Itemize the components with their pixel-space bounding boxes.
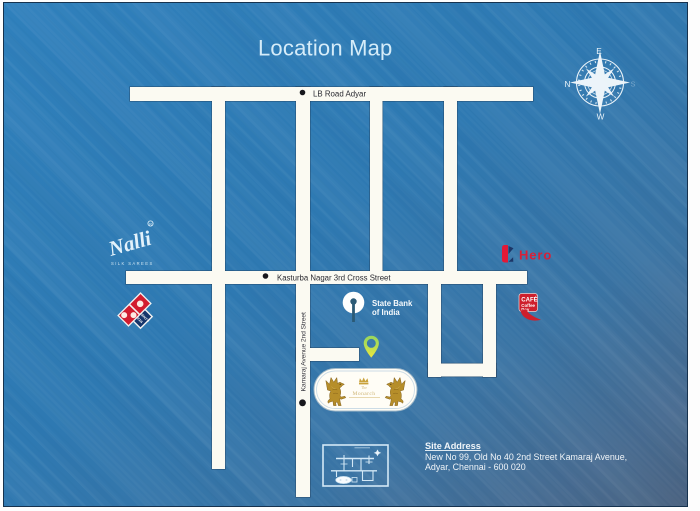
svg-text:State Bank: State Bank [372,299,413,308]
svg-text:Adyar, Chennai - 600 020: Adyar, Chennai - 600 020 [425,462,526,472]
svg-text:Hero: Hero [519,248,552,263]
svg-text:W: W [597,113,605,122]
svg-text:E: E [596,47,602,56]
svg-text:Kamaraj Avenue 2nd Street: Kamaraj Avenue 2nd Street [301,312,308,392]
svg-text:Location Map: Location Map [258,36,393,61]
svg-text:The: The [361,386,367,390]
svg-text:LB Road Adyar: LB Road Adyar [313,90,366,99]
svg-text:Monarch: Monarch [353,391,376,397]
svg-text:of India: of India [372,308,400,317]
svg-text:New No 99, Old No 40 2nd Stree: New No 99, Old No 40 2nd Street Kamaraj … [425,452,627,462]
svg-text:N: N [565,80,571,89]
svg-text:SILK SAREES: SILK SAREES [111,261,154,266]
svg-text:S: S [630,80,635,89]
svg-text:Site Address: Site Address [425,441,481,451]
svg-text:R: R [149,223,152,227]
svg-text:Kasturba Nagar 3rd Cross Stree: Kasturba Nagar 3rd Cross Street [277,274,391,283]
